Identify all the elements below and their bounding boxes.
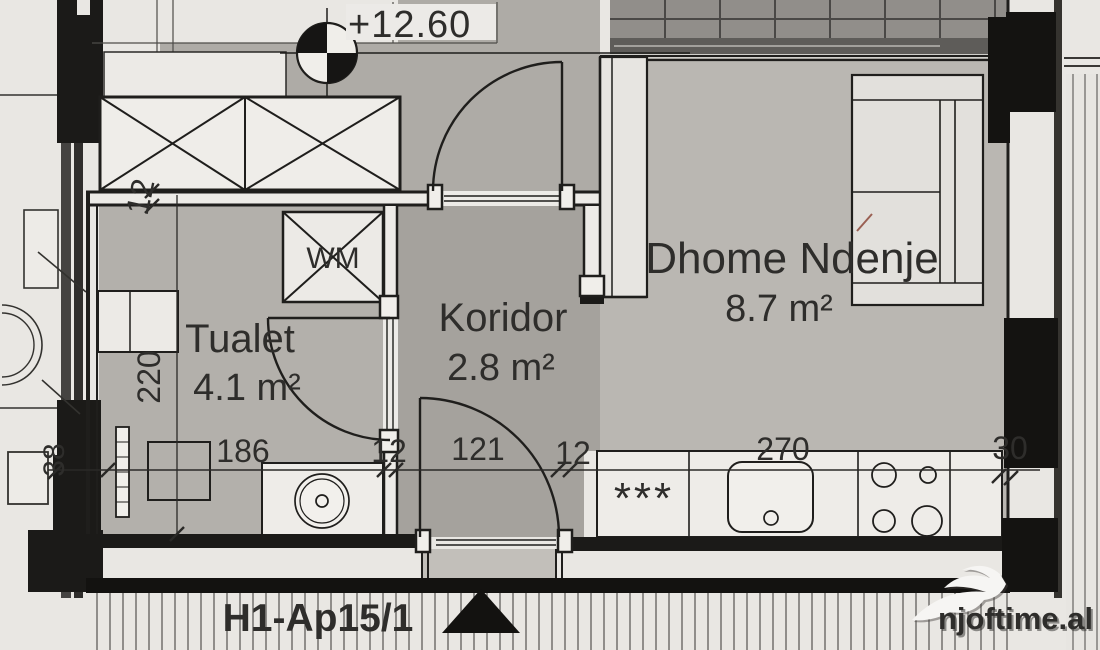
wm-label: WM xyxy=(306,242,359,275)
koridor-name: Koridor xyxy=(439,296,568,340)
dim-12-a: 12 xyxy=(371,433,407,469)
kitchen-sink xyxy=(728,462,813,532)
shaft-cabinet xyxy=(100,97,400,190)
window-band xyxy=(600,0,1008,60)
dim-12-top: 12 xyxy=(119,176,162,218)
neighbour-niche-1 xyxy=(24,210,58,288)
tualet-name: Tualet xyxy=(185,317,295,361)
dim-30: 30 xyxy=(992,430,1028,466)
floor-plan: +12.60 xyxy=(0,0,1100,650)
vestibule-floor xyxy=(422,549,556,578)
floor-plan-drawing: +12.60 xyxy=(0,0,1100,650)
dhome-area: 8.7 m² xyxy=(725,288,833,330)
unit-label: H1-Ap15/1 xyxy=(223,597,414,640)
dim-38: 38 xyxy=(38,443,71,476)
dim-270: 270 xyxy=(756,431,809,467)
watermark-text: njoftime.al xyxy=(938,601,1093,636)
dhome-name: Dhome Ndenje xyxy=(645,234,939,283)
fridge-symbol: *** xyxy=(614,474,674,523)
tualet-area: 4.1 m² xyxy=(193,367,301,409)
terrace-hatch-right xyxy=(1066,74,1100,650)
elevation-label: +12.60 xyxy=(348,4,471,46)
dim-12-b: 12 xyxy=(555,435,591,471)
koridor-area: 2.8 m² xyxy=(447,347,555,389)
wc-toilet xyxy=(98,291,178,352)
dim-220: 220 xyxy=(131,350,167,403)
washbasin xyxy=(262,463,383,537)
lobby-cabinet xyxy=(104,52,286,97)
closet xyxy=(600,57,647,297)
dim-121: 121 xyxy=(451,431,504,467)
dim-186: 186 xyxy=(216,433,269,469)
radiator xyxy=(116,427,129,517)
passage-floor xyxy=(584,303,600,451)
